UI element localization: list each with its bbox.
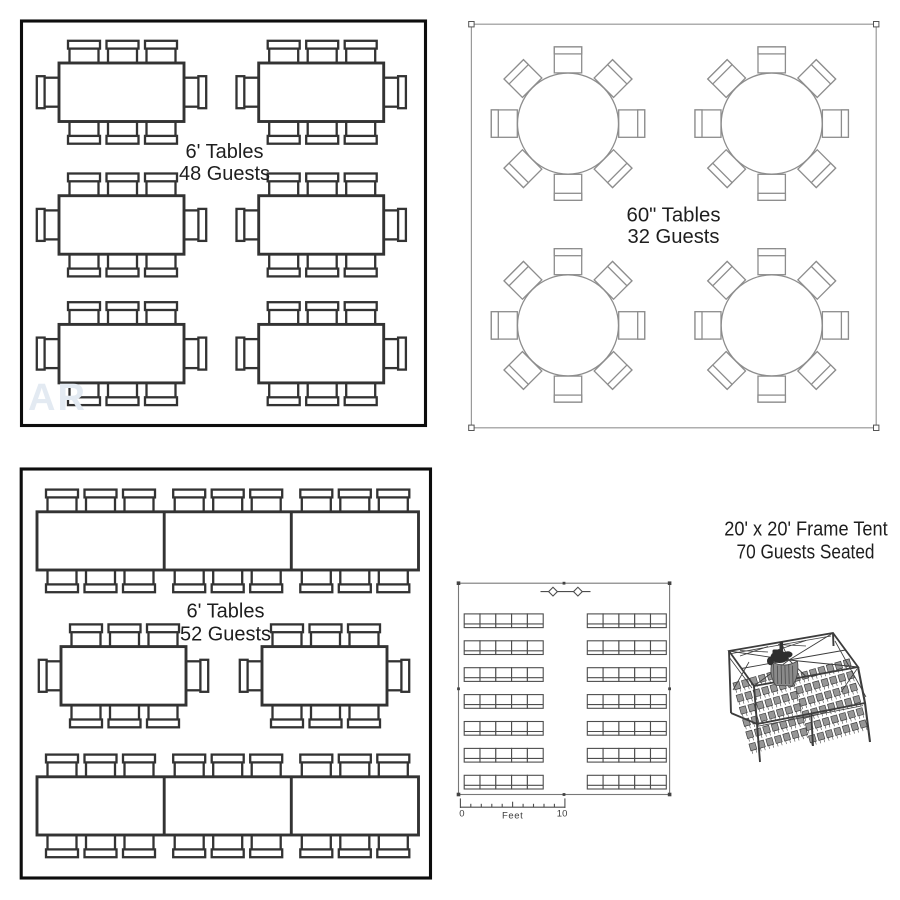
- svg-text:6' Tables: 6' Tables: [187, 600, 265, 623]
- svg-text:Feet: Feet: [502, 811, 523, 822]
- svg-text:AR: AR: [28, 377, 87, 419]
- svg-text:6' Tables: 6' Tables: [186, 140, 264, 163]
- svg-text:52 Guests: 52 Guests: [180, 623, 271, 646]
- svg-text:32 Guests: 32 Guests: [628, 225, 720, 248]
- svg-text:48 Guests: 48 Guests: [179, 162, 270, 185]
- svg-text:60" Tables: 60" Tables: [627, 203, 721, 226]
- svg-text:20' x 20' Frame Tent: 20' x 20' Frame Tent: [724, 518, 888, 541]
- svg-text:10: 10: [557, 809, 568, 820]
- svg-text:70 Guests Seated: 70 Guests Seated: [737, 541, 875, 564]
- svg-text:0: 0: [459, 809, 464, 820]
